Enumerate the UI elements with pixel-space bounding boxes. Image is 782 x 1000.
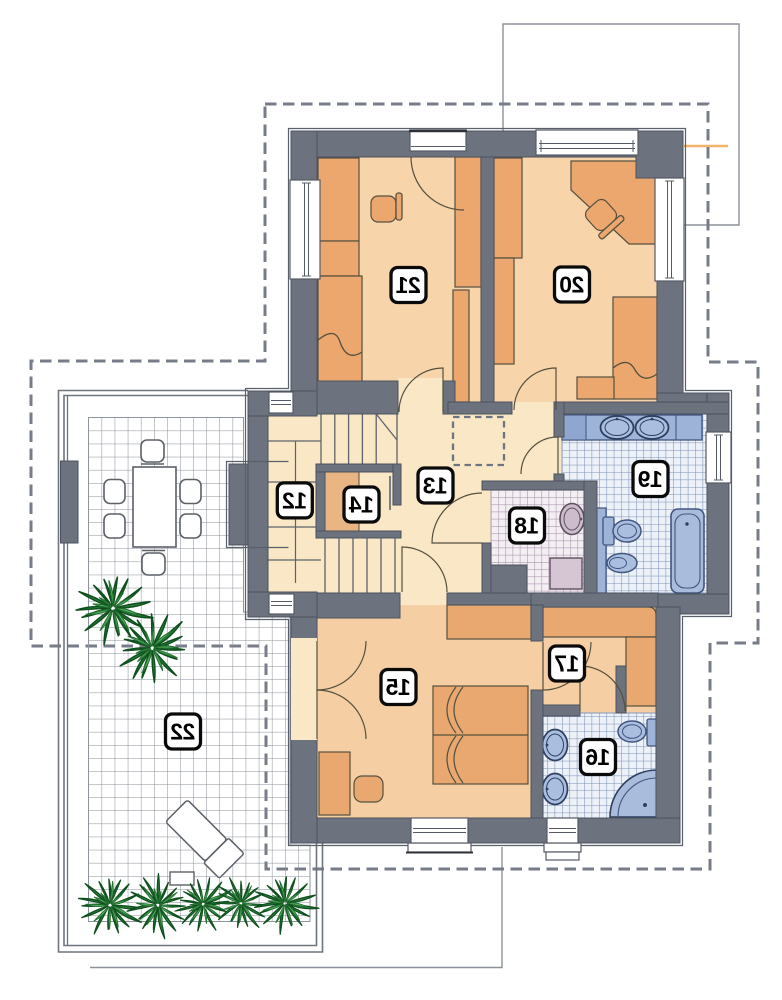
svg-text:20: 20	[560, 272, 585, 298]
svg-text:17: 17	[555, 651, 580, 677]
svg-text:13: 13	[423, 473, 448, 499]
svg-text:19: 19	[638, 466, 663, 492]
svg-text:18: 18	[514, 513, 539, 539]
svg-text:21: 21	[396, 272, 421, 298]
svg-text:15: 15	[386, 674, 411, 700]
svg-text:22: 22	[171, 719, 196, 745]
svg-text:16: 16	[586, 744, 611, 770]
svg-text:12: 12	[283, 487, 308, 513]
svg-text:14: 14	[349, 492, 374, 518]
